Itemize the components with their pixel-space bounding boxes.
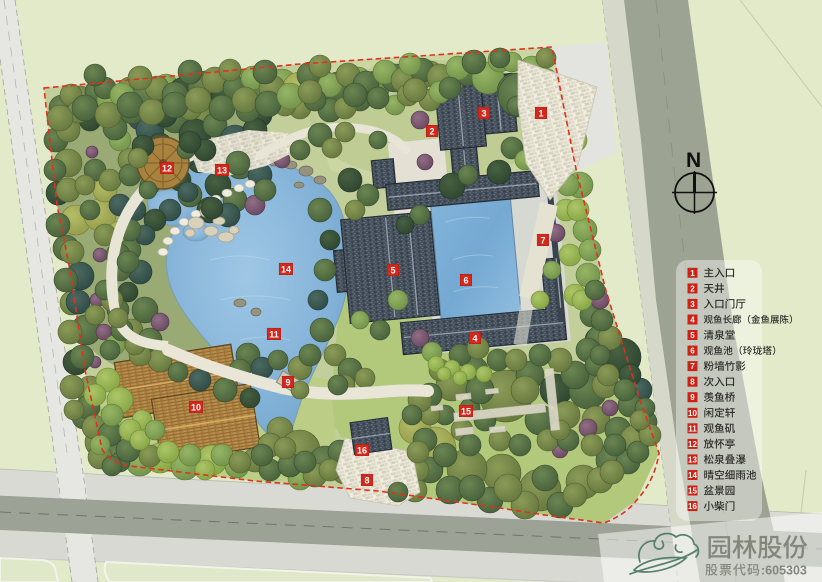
svg-text:N: N xyxy=(686,149,701,172)
svg-text:1: 1 xyxy=(538,108,543,118)
svg-text:4: 4 xyxy=(690,316,695,325)
svg-text:5: 5 xyxy=(390,265,395,275)
svg-text:8: 8 xyxy=(364,475,369,485)
svg-text:2: 2 xyxy=(690,284,695,293)
svg-text:1: 1 xyxy=(690,269,695,278)
svg-text:13: 13 xyxy=(217,165,227,175)
svg-text:12: 12 xyxy=(162,163,172,173)
svg-text:16: 16 xyxy=(688,502,697,511)
svg-text:14: 14 xyxy=(688,471,697,480)
svg-text:6: 6 xyxy=(690,347,695,356)
svg-text:9: 9 xyxy=(285,377,290,387)
svg-text:11: 11 xyxy=(688,424,697,433)
svg-text:10: 10 xyxy=(688,409,697,418)
svg-text:7: 7 xyxy=(690,362,695,371)
svg-text:14: 14 xyxy=(281,264,291,274)
svg-text:6: 6 xyxy=(463,275,468,285)
svg-text:12: 12 xyxy=(688,440,697,449)
svg-text:13: 13 xyxy=(688,455,697,464)
svg-text:8: 8 xyxy=(690,378,695,387)
svg-text::605303: :605303 xyxy=(761,564,807,578)
svg-text:16: 16 xyxy=(357,445,367,455)
svg-text:7: 7 xyxy=(540,235,545,245)
svg-text:9: 9 xyxy=(690,393,695,402)
svg-text:10: 10 xyxy=(191,402,201,412)
svg-text:11: 11 xyxy=(269,329,279,339)
svg-text:5: 5 xyxy=(690,331,695,340)
svg-text:15: 15 xyxy=(461,406,471,416)
svg-text:4: 4 xyxy=(472,333,477,343)
svg-text:2: 2 xyxy=(429,126,434,136)
svg-text:3: 3 xyxy=(481,108,486,118)
svg-text:15: 15 xyxy=(688,487,697,496)
svg-text:3: 3 xyxy=(690,300,695,309)
